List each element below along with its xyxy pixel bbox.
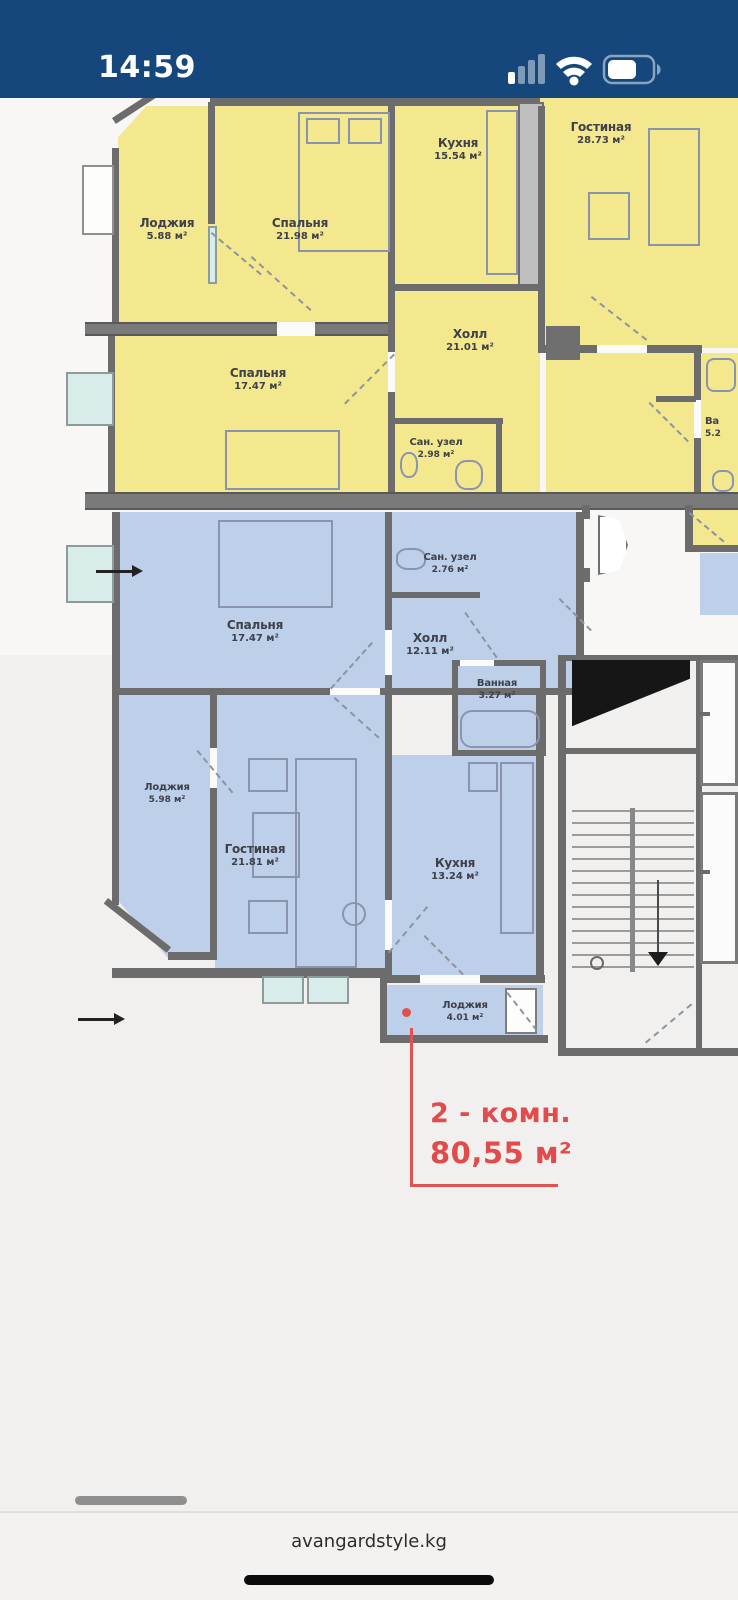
wall (168, 952, 216, 960)
toilet-icon (455, 460, 483, 490)
stair-arrow-stem (657, 880, 659, 952)
elevator-2 (700, 792, 738, 964)
apartment-rooms-label: 2 - комн. (430, 1098, 571, 1129)
room-area: 3.27 м² (442, 691, 552, 702)
armchair-icon (588, 192, 630, 240)
room-name: Лоджия (112, 782, 222, 795)
wall (210, 98, 540, 106)
window-sill (262, 976, 304, 1004)
room-area: 28.73 м² (546, 135, 656, 148)
wall (452, 750, 546, 756)
status-time: 14:59 (98, 50, 196, 85)
site-label: avangardstyle.kg (0, 1531, 738, 1552)
elevator-1 (700, 660, 738, 786)
wall (208, 102, 215, 224)
wall (656, 396, 696, 402)
bed-icon (218, 520, 333, 608)
room-area: 13.24 м² (400, 871, 510, 884)
wall (496, 418, 502, 492)
pillow-icon (348, 118, 382, 144)
entrance-arrow-head (114, 1013, 125, 1025)
highlight-leader-vertical (410, 1028, 413, 1186)
room-area: 12.11 м² (375, 646, 485, 659)
room-area: 21.98 м² (245, 231, 355, 244)
room-area: 15.54 м² (403, 151, 513, 164)
wall (538, 106, 545, 353)
room-name: Ва (705, 416, 738, 429)
wall-thick (85, 322, 395, 336)
wifi-icon (556, 57, 592, 86)
door-gap (385, 900, 392, 950)
staircase-rail (630, 808, 635, 972)
chair-icon (248, 758, 288, 792)
wall (380, 1035, 548, 1043)
stair-post-icon (590, 956, 604, 970)
window (66, 545, 114, 603)
elevator-door-notch (700, 870, 710, 874)
wall (395, 418, 503, 424)
room-area: 5.88 м² (112, 231, 222, 244)
wall (390, 592, 480, 598)
room-label-bath-blue: Ванная 3.27 м² (442, 678, 552, 702)
room-name: Кухня (400, 856, 510, 871)
room-label-wc-yellow: Сан. узел 2.98 м² (381, 437, 491, 461)
door-gap (420, 975, 480, 983)
door-gap (597, 345, 647, 353)
room-area: 21.81 м² (200, 857, 310, 870)
wall (380, 975, 387, 1041)
entrance-arrow-head (132, 565, 143, 577)
room-name: Гостиная (546, 120, 656, 135)
wall (566, 748, 696, 754)
entrance-arrow (96, 570, 134, 573)
wall (452, 660, 458, 756)
room-name: Сан. узел (381, 437, 491, 450)
room-name: Спальня (200, 618, 310, 633)
room-name: Спальня (245, 216, 355, 231)
room-area: 17.47 м² (200, 633, 310, 646)
room-name: Кухня (403, 136, 513, 151)
room-label-wc-blue: Сан. узел 2.76 м² (405, 552, 495, 576)
kitchen-counter-icon (486, 110, 518, 275)
neighbor-blue-sliver (700, 553, 738, 615)
highlight-dot (402, 1008, 411, 1017)
room-label-kitchen-yellow: Кухня 15.54 м² (403, 136, 513, 164)
wall-interapartment (85, 492, 738, 510)
room-label-bedroom1-yellow: Спальня 21.98 м² (245, 216, 355, 244)
elevator-shaft-wedge (572, 660, 690, 745)
wall-column (546, 326, 580, 360)
wall (210, 690, 217, 960)
window (66, 372, 114, 426)
door-gap (330, 688, 380, 695)
kitchen-counter-icon (500, 762, 534, 934)
stair-arrow-icon (648, 952, 668, 966)
toilet-icon (712, 470, 734, 492)
status-bar: 14:59 (0, 0, 738, 98)
room-area: 5.2 (705, 429, 738, 440)
room-name: Лоджия (112, 216, 222, 231)
wall (582, 505, 590, 519)
room-label-living-blue: Гостиная 21.81 м² (200, 842, 310, 870)
room-area: 2.98 м² (381, 450, 491, 461)
room-name: Сан. узел (405, 552, 495, 565)
room-name: Ванная (442, 678, 552, 691)
room-area: 21.01 м² (415, 342, 525, 355)
window-bay (82, 165, 114, 235)
room-name: Гостиная (200, 842, 310, 857)
room-hall-yellow-ext (546, 353, 694, 492)
wall (582, 568, 590, 582)
room-area: 4.01 м² (410, 1013, 520, 1024)
wall (558, 1048, 738, 1056)
status-icons (508, 50, 668, 90)
home-indicator[interactable] (244, 1575, 494, 1585)
elevator-door-notch (700, 712, 710, 716)
battery-icon (604, 56, 661, 83)
room-area: 2.76 м² (405, 565, 495, 576)
wall (685, 545, 738, 552)
room-label-loggia-blue: Лоджия 5.98 м² (112, 782, 222, 806)
door-gap (460, 660, 494, 666)
wall (112, 968, 392, 978)
sink-icon (468, 762, 498, 792)
room-label-bedroom-blue: Спальня 17.47 м² (200, 618, 310, 646)
scroll-handle[interactable] (75, 1496, 187, 1505)
wall (558, 655, 566, 1056)
room-label-living-yellow: Гостиная 28.73 м² (546, 120, 656, 148)
room-area: 5.98 м² (112, 795, 222, 806)
bathtub-icon (460, 710, 540, 748)
room-name: Холл (375, 631, 485, 646)
wall (388, 284, 545, 291)
chair-icon (248, 900, 288, 934)
room-label-bath-partial: Ва 5.2 (705, 416, 738, 440)
room-label-hall-blue: Холл 12.11 м² (375, 631, 485, 659)
room-name: Холл (415, 327, 525, 342)
door-gap (694, 400, 701, 438)
bottom-bar (0, 1513, 738, 1600)
pillow-icon (306, 118, 340, 144)
room-label-kitchen-blue: Кухня 13.24 м² (400, 856, 510, 884)
lamp-icon (342, 902, 366, 926)
room-name: Лоджия (410, 1000, 520, 1013)
room-label-hall-yellow: Холл 21.01 м² (415, 327, 525, 355)
window-sill (307, 976, 349, 1004)
highlight-leader-horizontal (410, 1184, 558, 1187)
apartment-area-label: 80,55 м² (430, 1136, 572, 1170)
bed-icon (225, 430, 340, 490)
cellular-signal-icon (508, 54, 545, 84)
door-swing (645, 1003, 692, 1043)
bathtub-icon (706, 358, 736, 392)
phone-screen: Лоджия 5.88 м² Спальня 21.98 м² Кухня 15… (0, 0, 738, 1600)
entrance-arrow (78, 1018, 116, 1021)
room-label-bedroom2-yellow: Спальня 17.47 м² (203, 366, 313, 394)
door-gap (277, 322, 315, 336)
room-area: 17.47 м² (203, 381, 313, 394)
room-label-loggia-yellow: Лоджия 5.88 м² (112, 216, 222, 244)
room-label-loggia2-blue: Лоджия 4.01 м² (410, 1000, 520, 1024)
room-name: Спальня (203, 366, 313, 381)
